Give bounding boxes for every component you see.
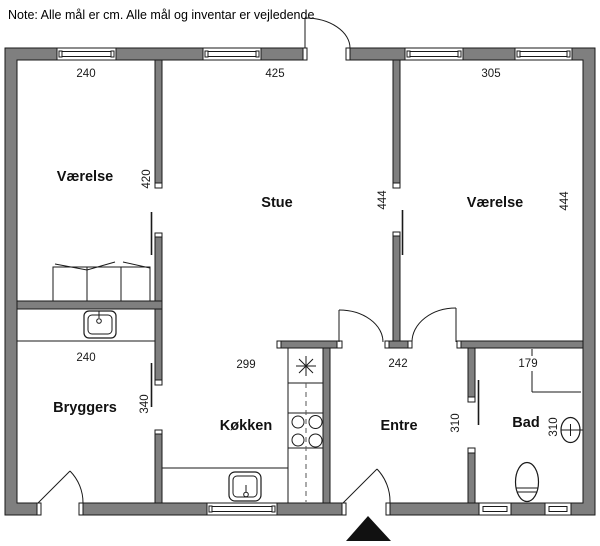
- dim-entre-width: 242: [388, 358, 407, 370]
- wall-stue-vaerelse-right-upper: [393, 60, 400, 188]
- dim-vaerelse-right-width: 305: [481, 68, 500, 80]
- wall-end-cap: [468, 448, 475, 453]
- dim-entre-depth: 310: [450, 413, 462, 432]
- dim-vaerelse-left-depth: 420: [141, 169, 153, 188]
- dim-vaerelse-left-width: 240: [76, 68, 95, 80]
- wall-vaerelse-bryggers: [17, 301, 162, 309]
- dim-stue-depth: 444: [377, 190, 389, 210]
- dim-bryggers-width: 240: [76, 352, 95, 364]
- wall-end-cap: [155, 380, 162, 385]
- wall-end-cap: [457, 341, 461, 348]
- window-vaerelse-right-1: [405, 48, 463, 60]
- wall-end-cap: [155, 183, 162, 188]
- door-stue-back: [303, 18, 350, 61]
- room-label-bad: Bad: [512, 415, 539, 431]
- toilet: [516, 463, 539, 502]
- wall-end-cap: [277, 341, 281, 348]
- wall-bryggers-koekken-lower: [155, 430, 162, 503]
- room-label-vaerelse-left: Værelse: [57, 169, 113, 185]
- wall-stue-vaerelse-right-lower: [393, 232, 400, 344]
- note-text: Note: Alle mål er cm. Alle mål og invent…: [8, 8, 314, 22]
- wall-entre-bad-lower: [468, 448, 475, 503]
- wall-end-cap: [408, 341, 412, 348]
- window-vaerelse-right-2: [515, 48, 572, 60]
- floor-plan-drawing: Note: Alle mål er cm. Alle mål og invent…: [0, 0, 600, 546]
- dim-koekken-width: 299: [236, 359, 255, 371]
- wall-stue-koekken: [277, 341, 342, 348]
- wall-end-cap: [155, 430, 162, 434]
- floor-drain-star-icon: [296, 356, 316, 376]
- window-koekken: [207, 503, 277, 515]
- window-bad-1: [479, 503, 511, 515]
- north-arrow-icon: [346, 516, 391, 541]
- wall-end-cap: [155, 233, 162, 237]
- wall-vaerelse-right-bad: [457, 341, 583, 348]
- wall-end-cap: [385, 341, 389, 348]
- wall-end-cap: [468, 397, 475, 402]
- dim-bad-depth: 310: [548, 417, 560, 436]
- wall-end-cap: [393, 183, 400, 188]
- room-label-stue: Stue: [261, 195, 292, 211]
- dim-bryggers-depth: 340: [139, 394, 151, 413]
- wall-vaerelse-left-stue-upper: [155, 60, 162, 188]
- room-label-bryggers: Bryggers: [53, 400, 117, 416]
- wall-end-cap: [337, 341, 342, 348]
- window-vaerelse-left: [57, 48, 116, 60]
- wall-koekken-entre: [323, 348, 330, 503]
- wall-end-cap: [393, 232, 400, 236]
- dim-stue-width: 425: [265, 68, 284, 80]
- floor-area: [17, 60, 583, 503]
- room-label-entre: Entre: [380, 418, 417, 434]
- window-stue: [203, 48, 261, 60]
- outer-walls: [5, 48, 595, 515]
- dim-vaerelse-right-depth: 444: [559, 191, 571, 211]
- dim-bad-width: 179: [518, 358, 537, 370]
- floor-plan-page: Note: Alle mål er cm. Alle mål og invent…: [0, 0, 600, 546]
- window-bad-2: [545, 503, 571, 515]
- room-label-koekken: Køkken: [220, 418, 272, 434]
- room-label-vaerelse-right: Værelse: [467, 195, 523, 211]
- wall-entre-bad-upper: [468, 348, 475, 402]
